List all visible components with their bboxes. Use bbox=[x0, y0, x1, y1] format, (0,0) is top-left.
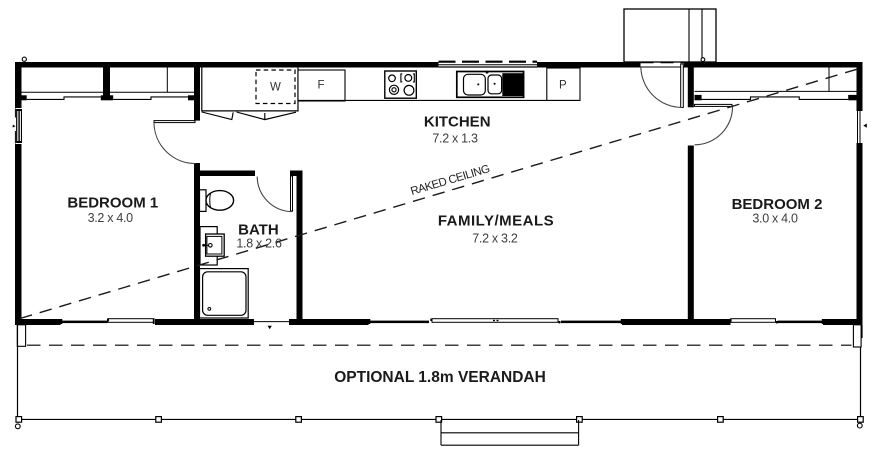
svg-text:1.8 x 2.6: 1.8 x 2.6 bbox=[236, 237, 282, 251]
svg-text:KITCHEN: KITCHEN bbox=[424, 113, 491, 130]
svg-text:7.2 x 1.3: 7.2 x 1.3 bbox=[432, 131, 478, 145]
svg-text:P: P bbox=[559, 80, 567, 92]
svg-text:3.0 x 4.0: 3.0 x 4.0 bbox=[752, 212, 798, 226]
svg-text:F: F bbox=[318, 80, 325, 92]
svg-text:BEDROOM 1: BEDROOM 1 bbox=[67, 195, 158, 212]
svg-text:3.2 x 4.0: 3.2 x 4.0 bbox=[88, 211, 134, 225]
svg-text:OPTIONAL 1.8m VERANDAH: OPTIONAL 1.8m VERANDAH bbox=[334, 369, 546, 386]
svg-text:BEDROOM 2: BEDROOM 2 bbox=[732, 196, 823, 213]
svg-text:W: W bbox=[270, 82, 281, 94]
svg-text:7.2 x 3.2: 7.2 x 3.2 bbox=[472, 232, 518, 246]
svg-text:FAMILY/MEALS: FAMILY/MEALS bbox=[438, 213, 554, 230]
